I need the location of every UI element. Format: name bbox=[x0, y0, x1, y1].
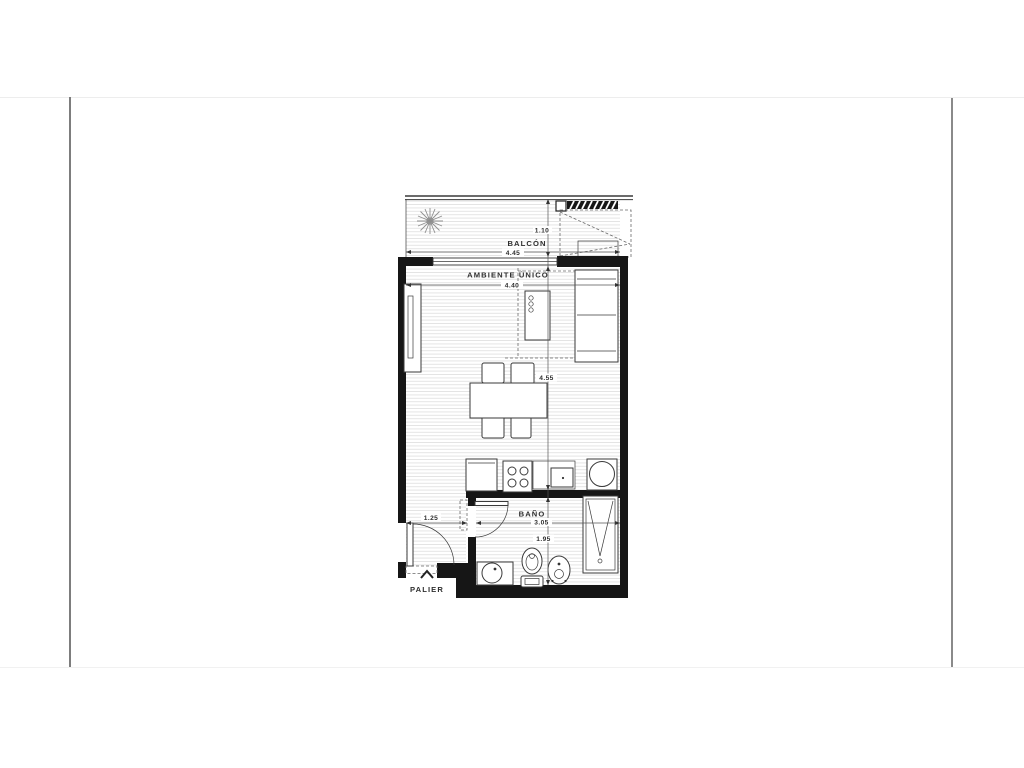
dim-balcony-depth: 1.10 bbox=[535, 228, 549, 235]
sink bbox=[533, 461, 575, 489]
label-landing: PALIER bbox=[410, 585, 444, 594]
dim-bathroom-width: 3.05 bbox=[534, 520, 548, 527]
chair bbox=[511, 417, 531, 438]
label-main-room: AMBIENTE ÚNICO bbox=[467, 271, 549, 280]
page-bottom-border bbox=[0, 667, 1024, 668]
page: BALCÓN AMBIENTE ÚNICO BAÑO PALIER 1.10 4… bbox=[0, 0, 1024, 768]
label-bathroom: BAÑO bbox=[519, 510, 546, 519]
wardrobe bbox=[404, 284, 421, 372]
bathroom-vanity bbox=[477, 562, 513, 585]
dim-room-width: 4.40 bbox=[505, 283, 519, 290]
chair bbox=[482, 363, 504, 383]
cooktop bbox=[503, 461, 532, 492]
kitchen-island bbox=[525, 291, 550, 340]
floorplan-drawing: BALCÓN AMBIENTE ÚNICO BAÑO PALIER 1.10 4… bbox=[390, 188, 642, 606]
dim-room-depth: 4.55 bbox=[539, 375, 553, 382]
dining-table bbox=[470, 383, 547, 418]
dim-bathroom-depth: 1.95 bbox=[536, 536, 550, 543]
page-top-border bbox=[0, 97, 1024, 98]
image-left-border bbox=[69, 97, 71, 667]
shower bbox=[583, 496, 618, 573]
plant-icon bbox=[417, 208, 443, 234]
fridge bbox=[466, 459, 497, 491]
window bbox=[433, 258, 557, 265]
image-right-border bbox=[951, 98, 953, 667]
chair bbox=[511, 363, 534, 384]
bed bbox=[575, 270, 618, 362]
dim-balcony-width: 4.45 bbox=[506, 250, 520, 257]
entry-arrow-icon bbox=[421, 571, 433, 578]
kitchen-counter bbox=[466, 459, 617, 492]
dim-entry-width: 1.25 bbox=[424, 515, 438, 522]
label-balcony: BALCÓN bbox=[507, 239, 546, 248]
chair bbox=[482, 416, 504, 438]
washing-machine bbox=[587, 459, 617, 490]
toilet bbox=[521, 548, 543, 587]
bidet bbox=[548, 556, 570, 584]
